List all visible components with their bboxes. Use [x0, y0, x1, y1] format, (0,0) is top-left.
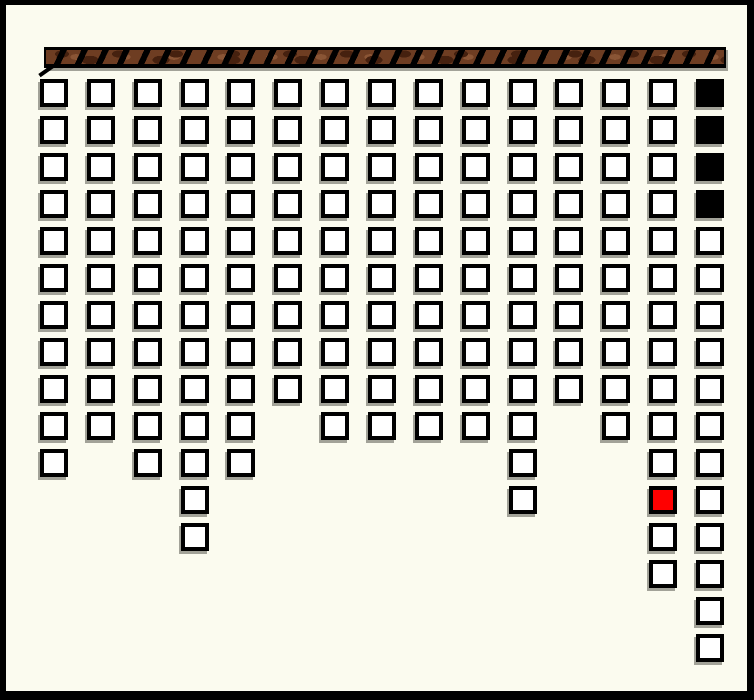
game-board [0, 0, 754, 700]
block-c6-r7[interactable] [274, 301, 302, 329]
beam-left-tail [38, 65, 53, 77]
block-c8-r8[interactable] [368, 338, 396, 366]
block-c15-r12[interactable] [696, 486, 724, 514]
block-c1-r7[interactable] [40, 301, 68, 329]
block-c10-r3[interactable] [462, 153, 490, 181]
block-c6-r1[interactable] [274, 79, 302, 107]
block-c8-r4[interactable] [368, 190, 396, 218]
block-c5-r2[interactable] [227, 116, 255, 144]
block-c2-r2[interactable] [87, 116, 115, 144]
block-c1-r11[interactable] [40, 449, 68, 477]
block-c5-r10[interactable] [227, 412, 255, 440]
block-c7-r2[interactable] [321, 116, 349, 144]
block-c8-r1[interactable] [368, 79, 396, 107]
block-c14-r8[interactable] [649, 338, 677, 366]
block-c12-r5[interactable] [555, 227, 583, 255]
block-c6-r8[interactable] [274, 338, 302, 366]
ceiling-beam [44, 47, 726, 68]
block-c1-r2[interactable] [40, 116, 68, 144]
block-c14-r2[interactable] [649, 116, 677, 144]
block-c4-r4[interactable] [181, 190, 209, 218]
block-c13-r2[interactable] [602, 116, 630, 144]
block-c5-r4[interactable] [227, 190, 255, 218]
block-c4-r1[interactable] [181, 79, 209, 107]
block-c4-r5[interactable] [181, 227, 209, 255]
block-c12-r3[interactable] [555, 153, 583, 181]
block-c12-r7[interactable] [555, 301, 583, 329]
block-c2-r6[interactable] [87, 264, 115, 292]
filled-black-block-c15-r3[interactable] [696, 153, 724, 181]
block-c11-r9[interactable] [509, 375, 537, 403]
active-red-block-c14-r12[interactable] [649, 486, 677, 514]
block-c3-r6[interactable] [134, 264, 162, 292]
block-c11-r4[interactable] [509, 190, 537, 218]
block-c9-r9[interactable] [415, 375, 443, 403]
block-c6-r9[interactable] [274, 375, 302, 403]
block-c10-r9[interactable] [462, 375, 490, 403]
block-c7-r9[interactable] [321, 375, 349, 403]
block-c14-r9[interactable] [649, 375, 677, 403]
block-c7-r3[interactable] [321, 153, 349, 181]
block-c7-r4[interactable] [321, 190, 349, 218]
block-c11-r8[interactable] [509, 338, 537, 366]
block-c2-r3[interactable] [87, 153, 115, 181]
block-c15-r7[interactable] [696, 301, 724, 329]
block-c15-r9[interactable] [696, 375, 724, 403]
block-c1-r3[interactable] [40, 153, 68, 181]
block-c11-r3[interactable] [509, 153, 537, 181]
block-c13-r3[interactable] [602, 153, 630, 181]
block-c14-r14[interactable] [649, 560, 677, 588]
block-c1-r1[interactable] [40, 79, 68, 107]
block-c5-r7[interactable] [227, 301, 255, 329]
block-c10-r8[interactable] [462, 338, 490, 366]
block-c11-r2[interactable] [509, 116, 537, 144]
block-c6-r4[interactable] [274, 190, 302, 218]
block-c5-r1[interactable] [227, 79, 255, 107]
block-c8-r5[interactable] [368, 227, 396, 255]
block-c3-r4[interactable] [134, 190, 162, 218]
block-c2-r5[interactable] [87, 227, 115, 255]
block-c3-r11[interactable] [134, 449, 162, 477]
block-c9-r10[interactable] [415, 412, 443, 440]
block-c3-r3[interactable] [134, 153, 162, 181]
block-c13-r7[interactable] [602, 301, 630, 329]
block-c6-r3[interactable] [274, 153, 302, 181]
block-c10-r1[interactable] [462, 79, 490, 107]
block-c13-r8[interactable] [602, 338, 630, 366]
block-c10-r4[interactable] [462, 190, 490, 218]
block-c2-r7[interactable] [87, 301, 115, 329]
block-c15-r15[interactable] [696, 597, 724, 625]
block-c10-r10[interactable] [462, 412, 490, 440]
block-c7-r1[interactable] [321, 79, 349, 107]
block-c9-r2[interactable] [415, 116, 443, 144]
block-c4-r7[interactable] [181, 301, 209, 329]
block-c10-r6[interactable] [462, 264, 490, 292]
block-c11-r1[interactable] [509, 79, 537, 107]
block-c2-r8[interactable] [87, 338, 115, 366]
block-c14-r3[interactable] [649, 153, 677, 181]
block-c12-r9[interactable] [555, 375, 583, 403]
block-c6-r6[interactable] [274, 264, 302, 292]
block-c14-r6[interactable] [649, 264, 677, 292]
block-c6-r2[interactable] [274, 116, 302, 144]
block-c10-r7[interactable] [462, 301, 490, 329]
block-c14-r1[interactable] [649, 79, 677, 107]
filled-black-block-c15-r1[interactable] [696, 79, 724, 107]
block-c1-r8[interactable] [40, 338, 68, 366]
block-c13-r9[interactable] [602, 375, 630, 403]
block-c4-r13[interactable] [181, 523, 209, 551]
beam-texture-pattern [46, 50, 724, 64]
block-c12-r4[interactable] [555, 190, 583, 218]
block-c8-r6[interactable] [368, 264, 396, 292]
block-c12-r6[interactable] [555, 264, 583, 292]
block-c7-r10[interactable] [321, 412, 349, 440]
block-c7-r6[interactable] [321, 264, 349, 292]
block-c7-r7[interactable] [321, 301, 349, 329]
block-c1-r4[interactable] [40, 190, 68, 218]
block-c4-r6[interactable] [181, 264, 209, 292]
block-c2-r9[interactable] [87, 375, 115, 403]
block-c12-r1[interactable] [555, 79, 583, 107]
filled-black-block-c15-r2[interactable] [696, 116, 724, 144]
block-c11-r6[interactable] [509, 264, 537, 292]
block-c4-r9[interactable] [181, 375, 209, 403]
block-c15-r5[interactable] [696, 227, 724, 255]
block-c14-r4[interactable] [649, 190, 677, 218]
block-c9-r3[interactable] [415, 153, 443, 181]
block-c8-r3[interactable] [368, 153, 396, 181]
block-c10-r2[interactable] [462, 116, 490, 144]
block-c13-r10[interactable] [602, 412, 630, 440]
block-c15-r6[interactable] [696, 264, 724, 292]
block-c1-r10[interactable] [40, 412, 68, 440]
block-c4-r3[interactable] [181, 153, 209, 181]
block-c15-r10[interactable] [696, 412, 724, 440]
block-c11-r12[interactable] [509, 486, 537, 514]
block-c14-r5[interactable] [649, 227, 677, 255]
block-c13-r5[interactable] [602, 227, 630, 255]
block-c9-r4[interactable] [415, 190, 443, 218]
block-c4-r10[interactable] [181, 412, 209, 440]
block-c3-r5[interactable] [134, 227, 162, 255]
block-c2-r4[interactable] [87, 190, 115, 218]
block-c3-r1[interactable] [134, 79, 162, 107]
block-c7-r8[interactable] [321, 338, 349, 366]
block-c11-r5[interactable] [509, 227, 537, 255]
block-c3-r7[interactable] [134, 301, 162, 329]
block-c13-r6[interactable] [602, 264, 630, 292]
block-c10-r5[interactable] [462, 227, 490, 255]
block-c8-r9[interactable] [368, 375, 396, 403]
block-c13-r4[interactable] [602, 190, 630, 218]
block-c3-r2[interactable] [134, 116, 162, 144]
block-c1-r5[interactable] [40, 227, 68, 255]
block-c5-r8[interactable] [227, 338, 255, 366]
block-c3-r8[interactable] [134, 338, 162, 366]
block-c13-r1[interactable] [602, 79, 630, 107]
block-c5-r3[interactable] [227, 153, 255, 181]
block-c8-r2[interactable] [368, 116, 396, 144]
block-c6-r5[interactable] [274, 227, 302, 255]
block-c15-r16[interactable] [696, 634, 724, 662]
block-c7-r5[interactable] [321, 227, 349, 255]
block-c5-r11[interactable] [227, 449, 255, 477]
block-c5-r9[interactable] [227, 375, 255, 403]
block-c4-r11[interactable] [181, 449, 209, 477]
block-c2-r10[interactable] [87, 412, 115, 440]
block-c15-r13[interactable] [696, 523, 724, 551]
block-c4-r8[interactable] [181, 338, 209, 366]
block-c9-r6[interactable] [415, 264, 443, 292]
block-c12-r2[interactable] [555, 116, 583, 144]
block-c11-r11[interactable] [509, 449, 537, 477]
block-c1-r9[interactable] [40, 375, 68, 403]
block-c15-r11[interactable] [696, 449, 724, 477]
block-c1-r6[interactable] [40, 264, 68, 292]
block-c8-r7[interactable] [368, 301, 396, 329]
block-c11-r10[interactable] [509, 412, 537, 440]
block-c15-r14[interactable] [696, 560, 724, 588]
block-c14-r13[interactable] [649, 523, 677, 551]
block-c4-r2[interactable] [181, 116, 209, 144]
block-c14-r11[interactable] [649, 449, 677, 477]
block-c3-r9[interactable] [134, 375, 162, 403]
block-c2-r1[interactable] [87, 79, 115, 107]
block-c11-r7[interactable] [509, 301, 537, 329]
block-c3-r10[interactable] [134, 412, 162, 440]
block-c14-r10[interactable] [649, 412, 677, 440]
block-c9-r5[interactable] [415, 227, 443, 255]
block-c12-r8[interactable] [555, 338, 583, 366]
block-c8-r10[interactable] [368, 412, 396, 440]
block-c4-r12[interactable] [181, 486, 209, 514]
block-c9-r8[interactable] [415, 338, 443, 366]
block-c9-r7[interactable] [415, 301, 443, 329]
block-c15-r8[interactable] [696, 338, 724, 366]
block-c5-r6[interactable] [227, 264, 255, 292]
filled-black-block-c15-r4[interactable] [696, 190, 724, 218]
block-c14-r7[interactable] [649, 301, 677, 329]
block-c9-r1[interactable] [415, 79, 443, 107]
block-c5-r5[interactable] [227, 227, 255, 255]
